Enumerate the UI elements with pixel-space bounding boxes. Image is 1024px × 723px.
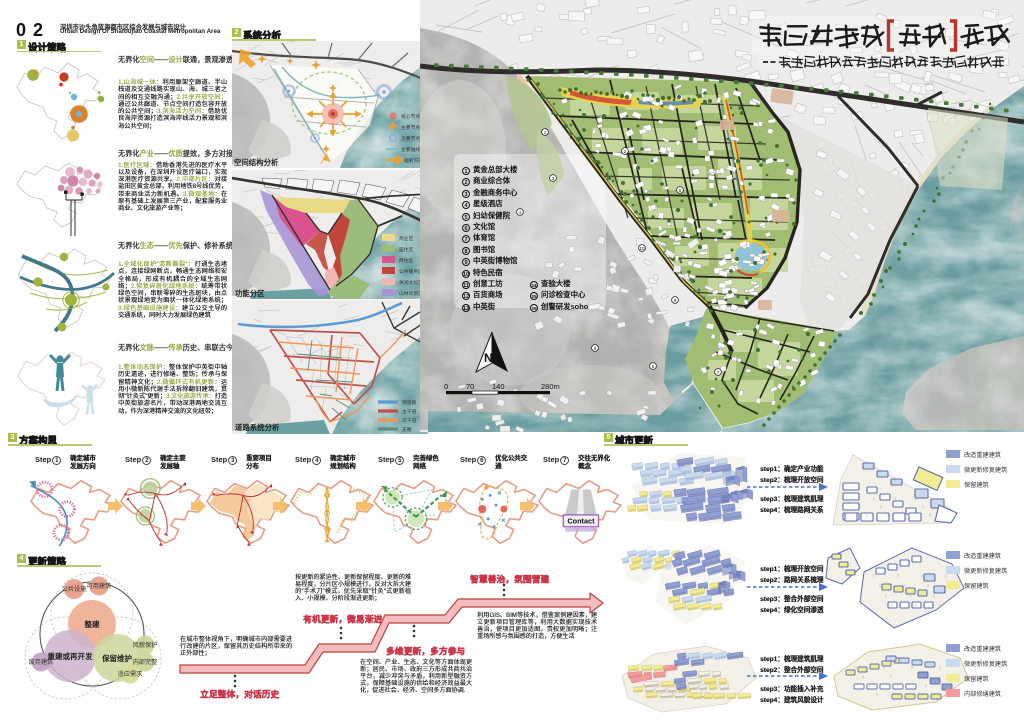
svg-text:保留维护: 保留维护	[101, 653, 132, 663]
svg-text:可用建筑: 可用建筑	[87, 582, 113, 590]
svg-text:9: 9	[674, 298, 677, 303]
svg-text:次干道: 次干道	[402, 417, 417, 424]
svg-text:核心节点: 核心节点	[401, 113, 420, 120]
svg-text:8: 8	[594, 346, 597, 351]
svg-text:主干道: 主干道	[402, 408, 417, 415]
svg-text:适应需求: 适应需求	[118, 670, 143, 678]
svg-text:0: 0	[444, 382, 448, 391]
svg-text:主要节点: 主要节点	[401, 124, 420, 131]
svg-text:空间结构分析: 空间结构分析	[234, 158, 279, 167]
svg-text:公共设施: 公共设施	[62, 585, 87, 593]
svg-text:1: 1	[544, 130, 547, 135]
svg-text:功能分区: 功能分区	[235, 289, 265, 298]
svg-text:7: 7	[717, 370, 720, 375]
svg-text:主要轴线: 主要轴线	[401, 146, 420, 153]
svg-text:3: 3	[552, 176, 555, 181]
svg-text:商业区: 商业区	[399, 235, 414, 242]
svg-text:140: 140	[492, 382, 505, 391]
svg-text:4: 4	[519, 210, 522, 215]
svg-text:内部完整: 内部完整	[133, 658, 158, 666]
svg-text:5: 5	[679, 188, 682, 193]
svg-text:居住区: 居住区	[399, 246, 414, 253]
svg-text:支路: 支路	[402, 426, 412, 433]
svg-text:10: 10	[639, 246, 645, 251]
svg-text:风貌保护: 风貌保护	[133, 641, 158, 649]
svg-text:重建或再开发: 重建或再开发	[48, 651, 93, 661]
svg-text:6: 6	[652, 364, 655, 369]
svg-text:70: 70	[466, 382, 474, 391]
svg-text:道路系统分析: 道路系统分析	[235, 423, 280, 432]
svg-text:280m: 280m	[541, 382, 560, 391]
svg-text:整建: 整建	[85, 619, 100, 629]
svg-text:2: 2	[624, 149, 627, 154]
svg-text:N: N	[484, 351, 493, 365]
svg-text:次要节点: 次要节点	[401, 135, 420, 142]
svg-text:Contact: Contact	[567, 517, 595, 526]
svg-text:商住区: 商住区	[399, 257, 414, 264]
svg-text:快速路: 快速路	[402, 399, 417, 406]
